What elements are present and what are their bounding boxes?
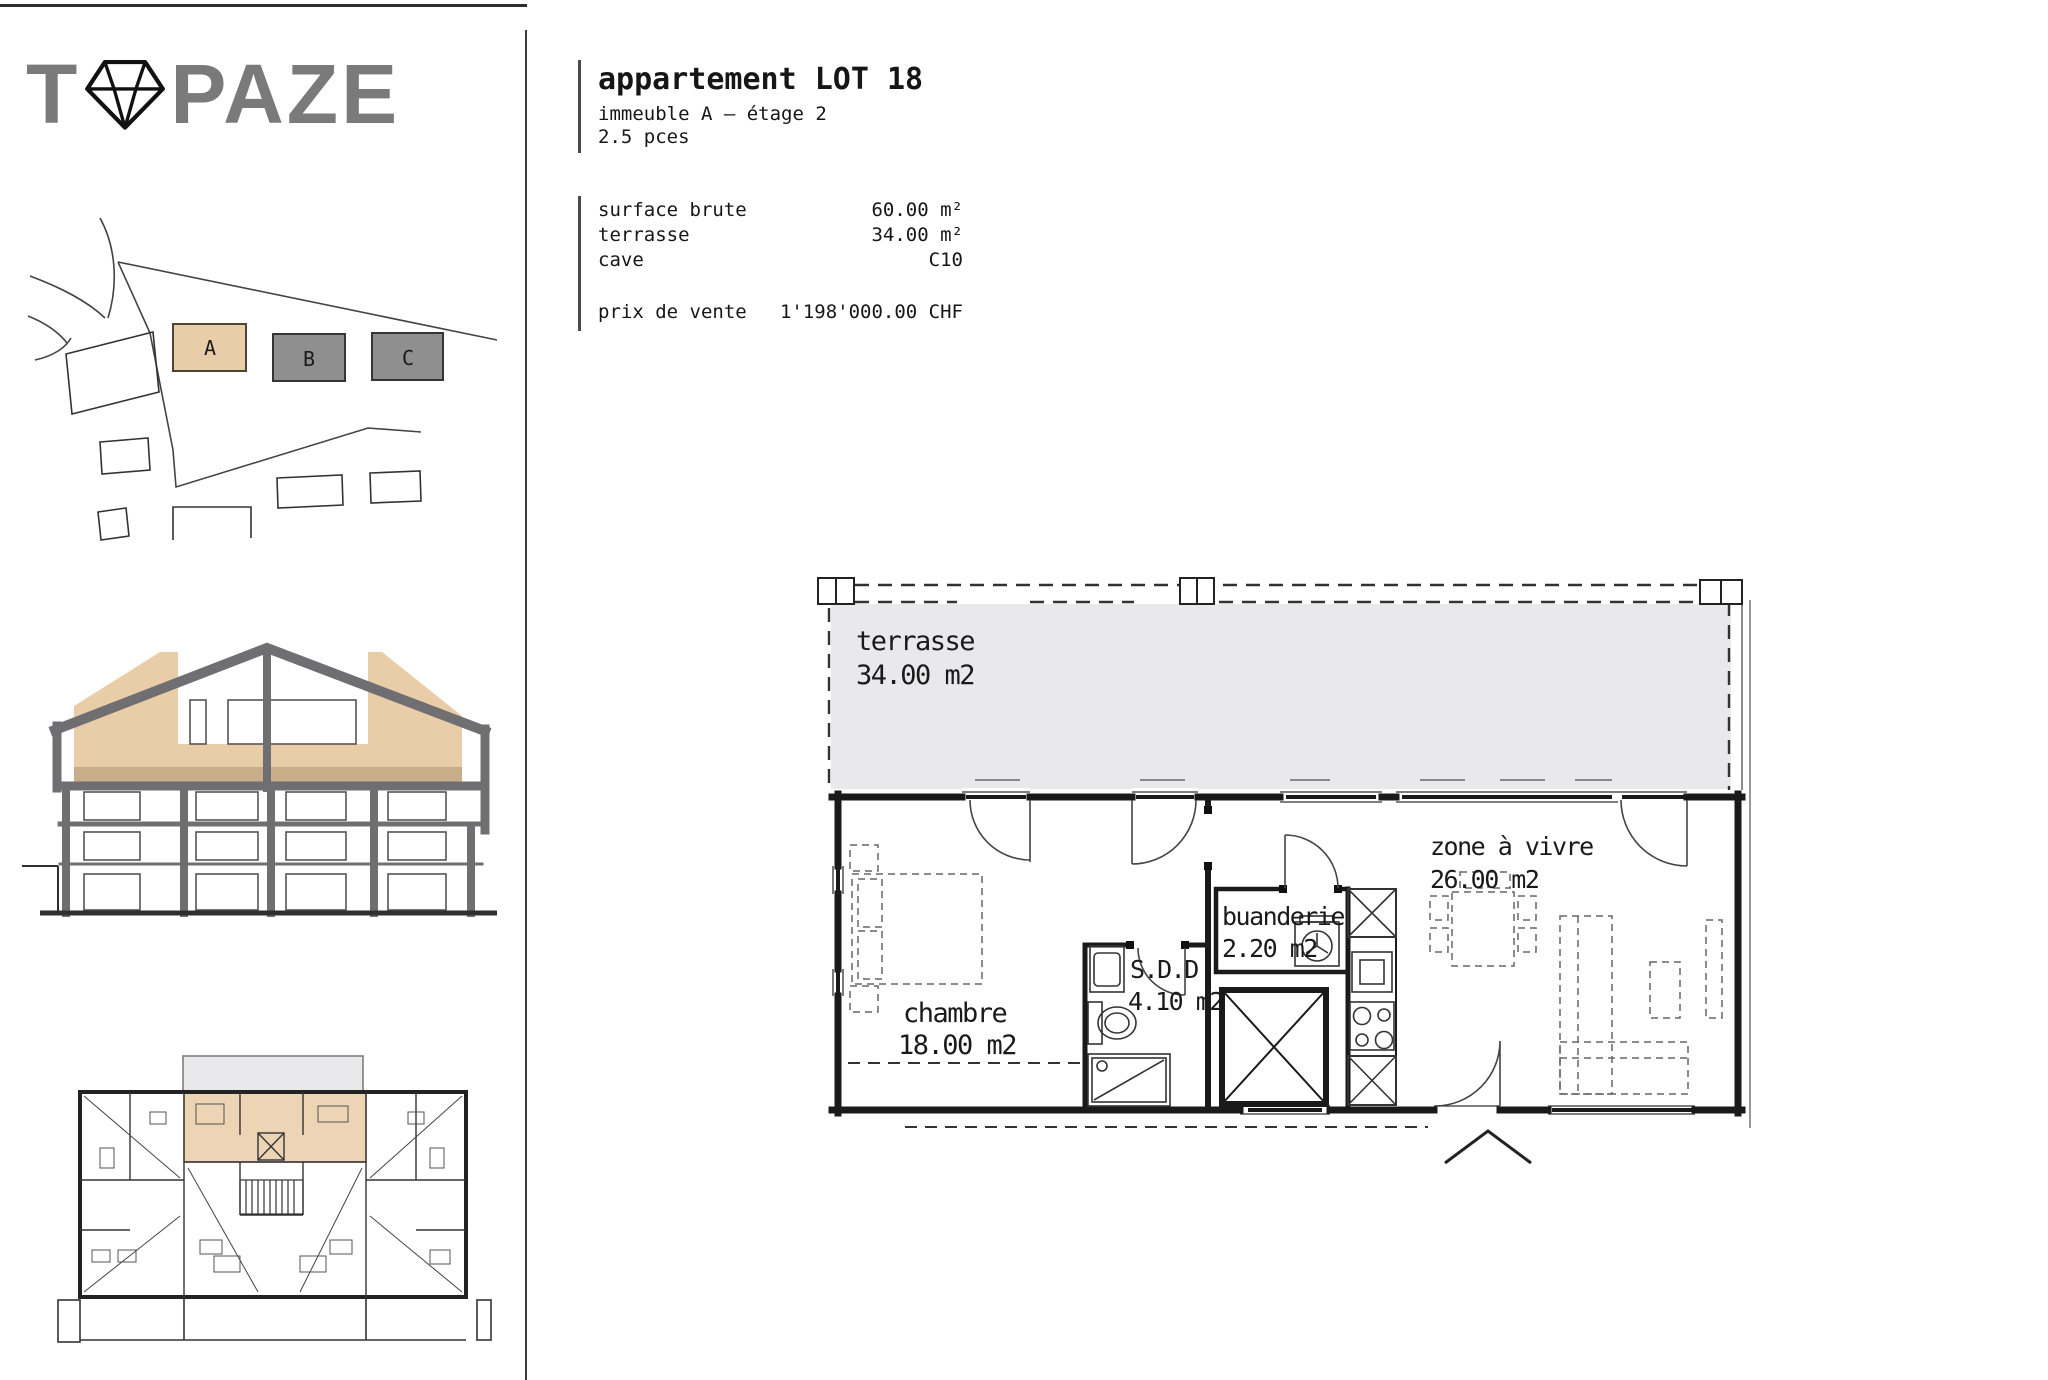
building-section	[20, 630, 510, 930]
building-b-label: B	[303, 347, 315, 371]
road-curve	[30, 276, 105, 318]
road-curve	[28, 316, 67, 343]
detail-row-terrace: terrasse 34.00 m²	[598, 223, 963, 248]
section-ground	[22, 866, 497, 913]
ceiling-lines	[848, 1063, 1428, 1127]
building-c-label: C	[402, 346, 414, 370]
laundry-label: buanderie 2.20 m2	[1222, 902, 1344, 963]
room-name: buanderie	[1222, 902, 1344, 931]
top-rule	[0, 4, 527, 7]
overview-floor-plan	[40, 1030, 510, 1380]
living-label: zone à vivre 26.00 m2	[1430, 832, 1593, 894]
logo-letter-t: T	[26, 52, 80, 136]
apartment-header: appartement LOT 18 immeuble A – étage 2 …	[578, 60, 923, 153]
detail-label: surface brute	[598, 198, 747, 223]
logo-letters-paze: PAZE	[170, 52, 400, 136]
overview-basement	[58, 1297, 491, 1342]
coffee-table	[1650, 962, 1680, 1018]
room-area: 26.00 m2	[1430, 865, 1538, 894]
sideboard	[1706, 920, 1722, 1018]
page-title: appartement LOT 18	[598, 62, 923, 97]
room-area: 18.00 m2	[898, 1030, 1016, 1061]
price-label: prix de vente	[598, 300, 747, 325]
detail-label: terrasse	[598, 223, 690, 248]
main-floor-plan: terrasse 34.00 m2 chambre 18.00 m2 S.D.D…	[770, 555, 1790, 1215]
rooms-line: 2.5 pces	[598, 126, 923, 149]
detail-row-surface: surface brute 60.00 m²	[598, 198, 963, 223]
room-area: 4.10 m2	[1128, 987, 1223, 1016]
room-area: 34.00 m2	[856, 660, 974, 691]
site-plan: A B C	[20, 160, 512, 580]
neighbor-building	[100, 438, 150, 474]
price-row: prix de vente 1'198'000.00 CHF	[598, 300, 963, 325]
neighbor-building	[370, 471, 421, 503]
detail-row-cave: cave C10	[598, 248, 963, 273]
price-value: 1'198'000.00 CHF	[780, 300, 963, 325]
entrance-arrow-icon	[1445, 1131, 1531, 1163]
fridge	[1352, 952, 1392, 992]
neighbor-building	[173, 507, 251, 540]
room-name: zone à vivre	[1430, 832, 1593, 861]
room-area: 2.20 m2	[1222, 934, 1317, 963]
overview-terrace	[183, 1056, 363, 1092]
bedroom-label: chambre 18.00 m2	[898, 998, 1016, 1061]
overview-stairs	[240, 1180, 303, 1214]
toilet	[1088, 1002, 1102, 1044]
neighbor-building	[66, 332, 159, 414]
topaze-logo: T PAZE	[26, 52, 400, 136]
elevator	[1222, 990, 1326, 1104]
detail-label: cave	[598, 248, 644, 273]
diamond-icon	[83, 53, 167, 135]
room-name: S.D.D	[1130, 955, 1198, 984]
sofa-group	[1560, 916, 1722, 1094]
detail-value: 34.00 m²	[871, 223, 963, 248]
detail-value: 60.00 m²	[871, 198, 963, 223]
room-name: chambre	[903, 998, 1007, 1029]
neighbor-building	[277, 475, 343, 508]
surface-details: surface brute 60.00 m² terrasse 34.00 m²…	[578, 196, 963, 331]
room-name: terrasse	[856, 626, 974, 657]
road-curve	[100, 218, 114, 318]
building-floor-line: immeuble A – étage 2	[598, 103, 923, 126]
column-divider	[525, 30, 527, 1380]
detail-value: C10	[929, 248, 963, 273]
bed	[850, 845, 982, 1012]
neighbor-building	[98, 508, 129, 540]
building-a-label: A	[204, 336, 216, 360]
plan-sheet: T PAZE appartement LOT 18 immeuble A – é…	[0, 0, 2048, 1380]
kitchen-block	[1348, 889, 1396, 1105]
terrace-posts	[818, 578, 1742, 604]
